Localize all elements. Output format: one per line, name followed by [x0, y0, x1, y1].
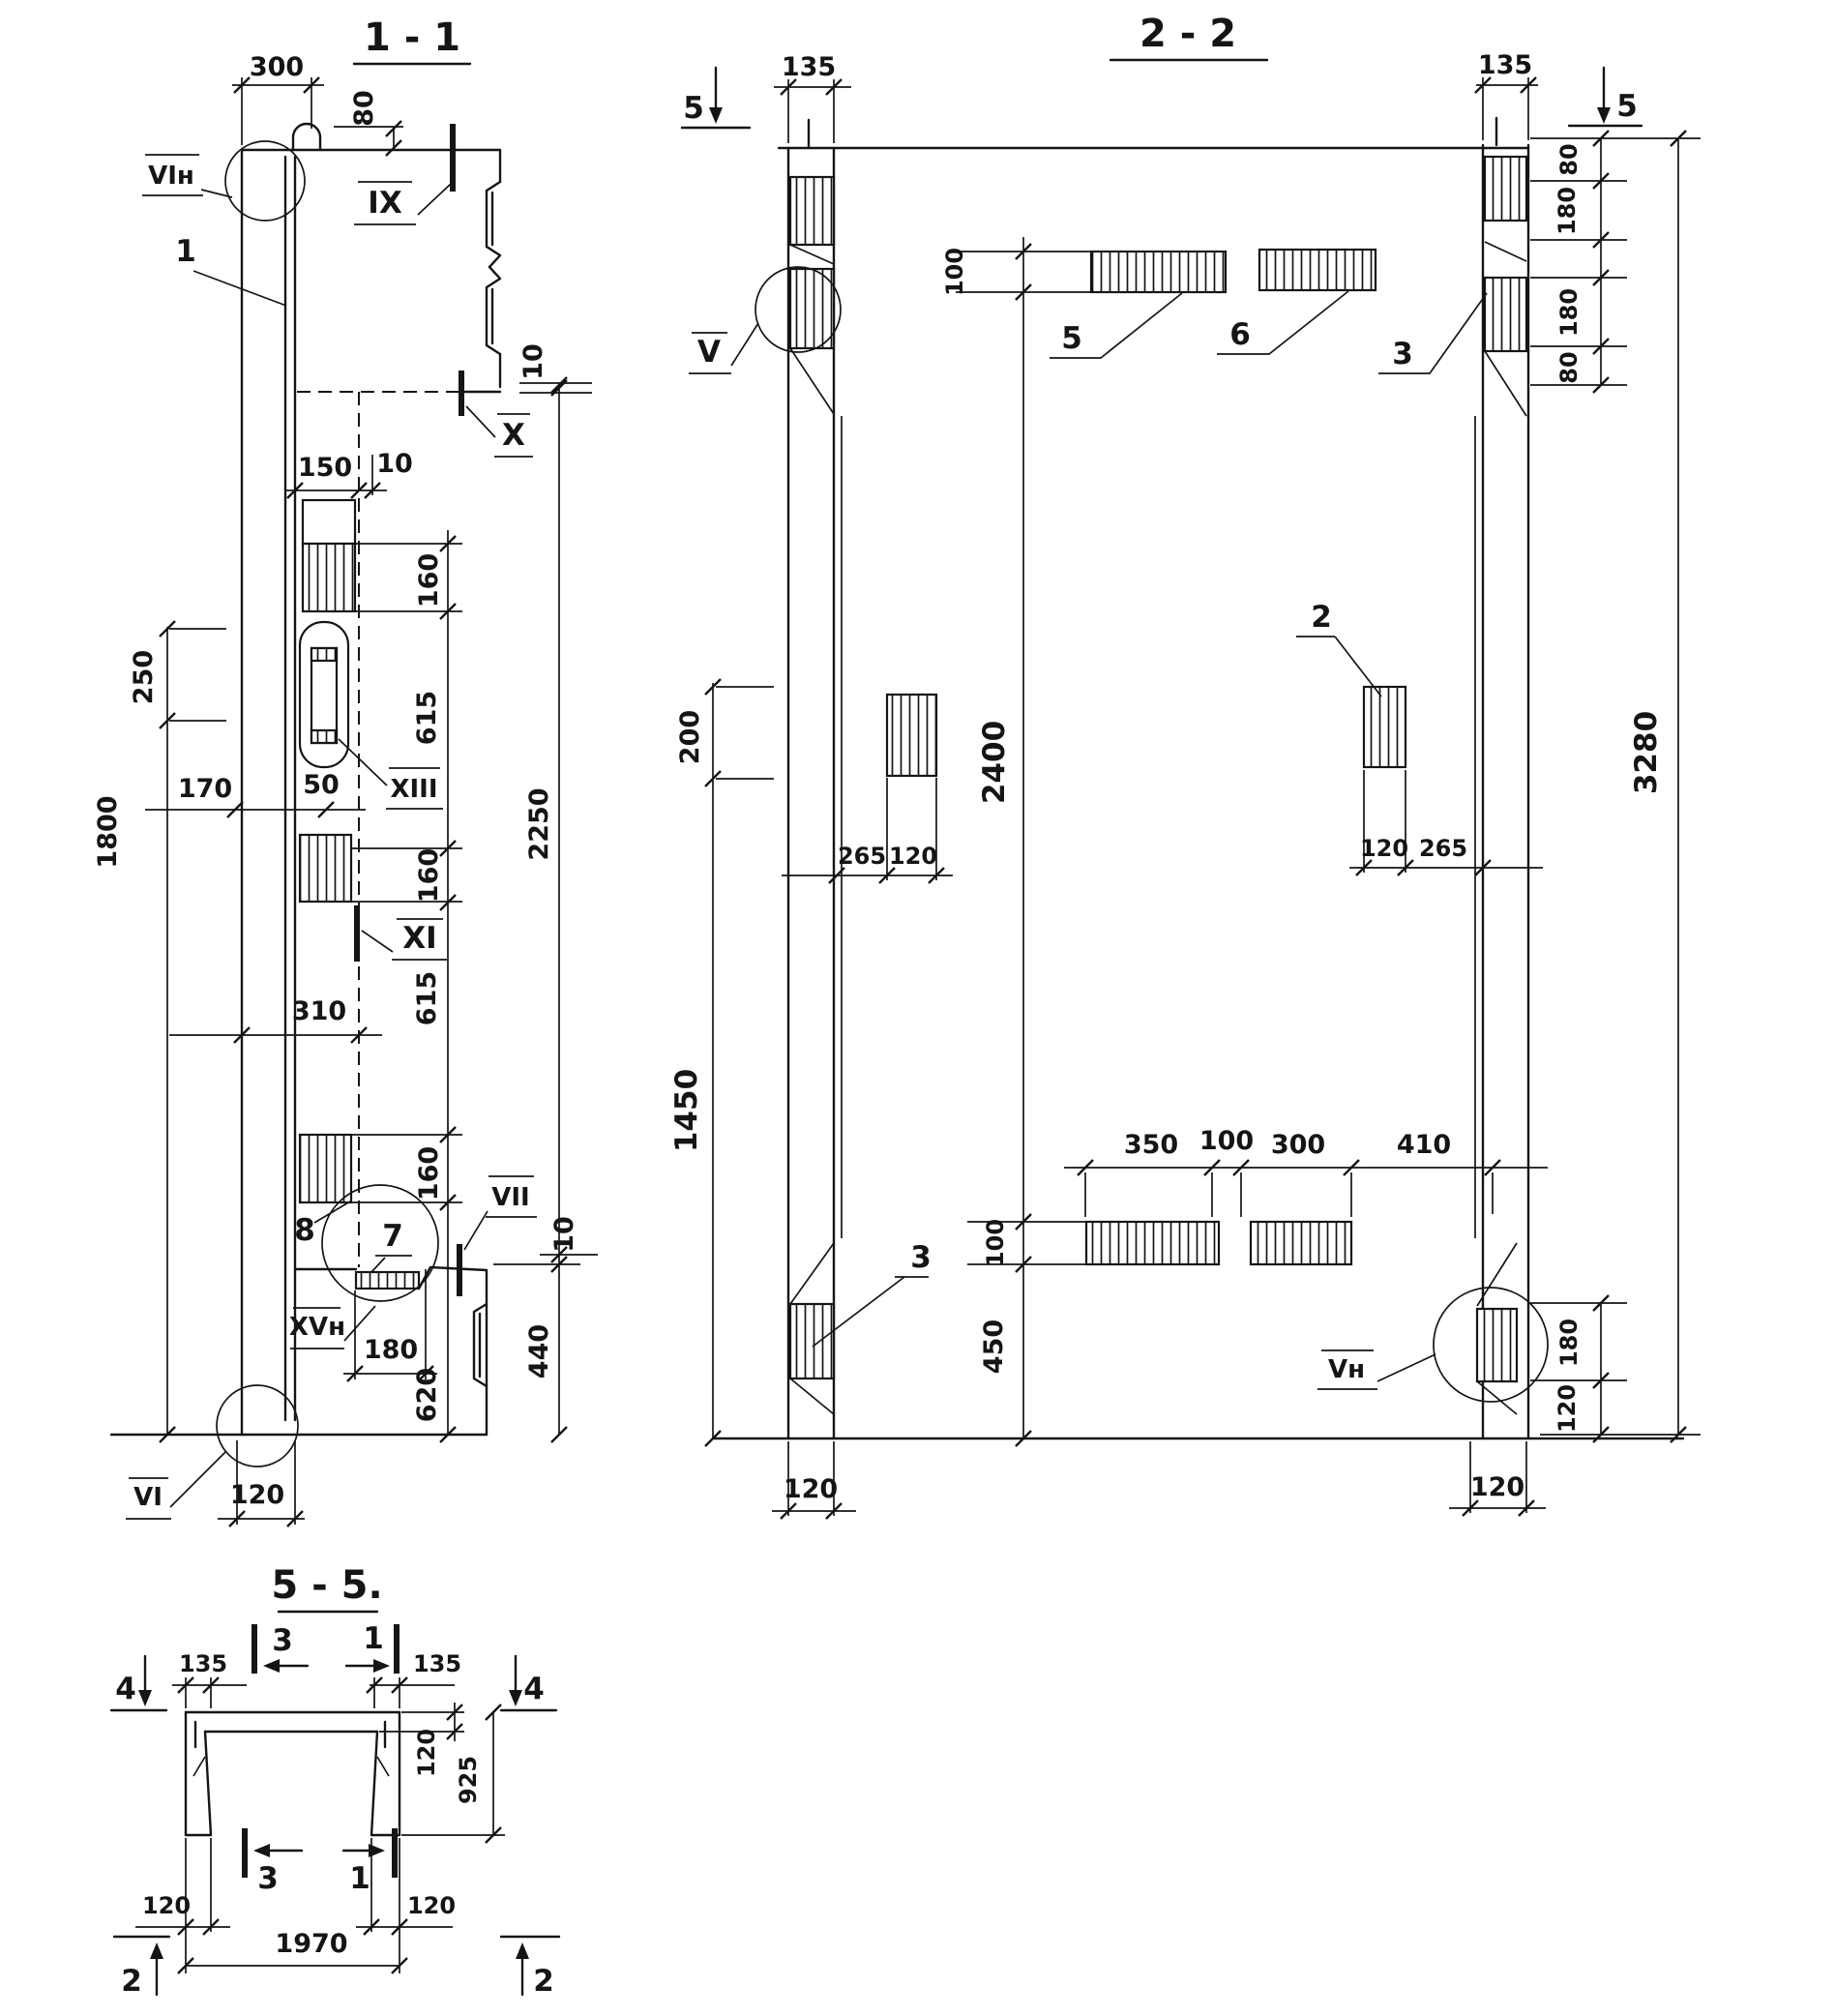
svg-text:10: 10 [549, 1216, 579, 1253]
anchor-item6 [1259, 250, 1376, 290]
svg-text:310: 310 [292, 996, 346, 1026]
svg-text:100: 100 [941, 248, 968, 296]
svg-text:150: 150 [298, 453, 352, 483]
svg-text:50: 50 [303, 770, 340, 800]
svg-text:7: 7 [382, 1219, 403, 1254]
svg-text:265: 265 [838, 843, 886, 870]
svg-text:3280: 3280 [1629, 711, 1664, 794]
svg-text:8: 8 [294, 1213, 315, 1248]
anchor-hatch-2 [300, 835, 351, 902]
svg-text:200: 200 [675, 710, 705, 764]
svg-text:180: 180 [1554, 187, 1581, 235]
technical-drawing: 1 - 1 [0, 0, 1835, 2016]
svg-text:180: 180 [1555, 288, 1583, 337]
svg-text:120: 120 [1360, 835, 1408, 862]
svg-text:2: 2 [533, 1964, 554, 1999]
svg-text:6: 6 [1229, 317, 1251, 352]
anchor-bottom-left [1086, 1222, 1219, 1264]
svg-text:XIII: XIII [390, 775, 437, 804]
svg-text:120: 120 [784, 1474, 838, 1504]
svg-text:VII: VII [491, 1183, 529, 1212]
right-rib-hatch-2 [1485, 278, 1526, 351]
svg-text:2250: 2250 [524, 787, 554, 860]
svg-text:620: 620 [412, 1368, 442, 1422]
svg-text:120: 120 [1554, 1384, 1581, 1433]
anchor-mid-left [887, 695, 936, 776]
svg-text:3: 3 [272, 1623, 293, 1658]
svg-text:4: 4 [523, 1672, 545, 1706]
svg-text:160: 160 [414, 848, 444, 903]
svg-text:2: 2 [1311, 600, 1332, 635]
svg-text:1: 1 [175, 234, 196, 269]
svg-text:120: 120 [889, 843, 937, 870]
svg-text:2: 2 [121, 1964, 142, 1999]
svg-text:925: 925 [455, 1756, 482, 1804]
svg-text:3: 3 [257, 1861, 279, 1896]
svg-text:80: 80 [349, 90, 379, 127]
svg-text:135: 135 [1478, 50, 1532, 80]
svg-text:300: 300 [250, 52, 304, 82]
svg-text:1800: 1800 [93, 795, 123, 868]
svg-text:170: 170 [178, 774, 232, 804]
section-1-1-title: 1 - 1 [364, 15, 460, 60]
svg-text:1: 1 [363, 1621, 384, 1656]
svg-text:265: 265 [1419, 835, 1467, 862]
svg-text:135: 135 [179, 1650, 227, 1677]
svg-text:450: 450 [979, 1319, 1009, 1374]
svg-text:80: 80 [1555, 351, 1583, 383]
svg-text:1450: 1450 [669, 1069, 704, 1152]
svg-text:410: 410 [1397, 1130, 1451, 1160]
svg-text:160: 160 [414, 1146, 444, 1201]
svg-text:250: 250 [129, 650, 159, 704]
svg-text:X: X [502, 418, 525, 453]
svg-text:300: 300 [1271, 1130, 1325, 1160]
svg-text:180: 180 [364, 1335, 418, 1365]
svg-text:XVн: XVн [289, 1313, 345, 1342]
svg-text:1970: 1970 [275, 1929, 347, 1959]
svg-text:5: 5 [683, 91, 704, 126]
left-rib-hatch-bottom [790, 1304, 834, 1379]
section-5-5-title: 5 - 5. [271, 1563, 382, 1608]
anchor-item2 [1364, 687, 1406, 767]
svg-text:4: 4 [115, 1672, 136, 1706]
svg-text:350: 350 [1124, 1130, 1178, 1160]
svg-text:10: 10 [376, 449, 413, 479]
svg-text:10: 10 [518, 343, 548, 380]
anchor-item5 [1091, 252, 1226, 292]
svg-text:615: 615 [412, 971, 442, 1025]
svg-text:VIн: VIн [148, 162, 194, 191]
svg-text:100: 100 [1199, 1126, 1254, 1156]
svg-text:135: 135 [782, 52, 836, 82]
svg-text:3: 3 [1392, 337, 1413, 371]
svg-text:XI: XI [402, 921, 436, 956]
svg-text:120: 120 [230, 1480, 284, 1510]
svg-text:180: 180 [1555, 1319, 1583, 1367]
svg-text:135: 135 [413, 1650, 461, 1677]
svg-text:VI: VI [133, 1483, 163, 1512]
svg-text:100: 100 [982, 1219, 1009, 1267]
svg-text:120: 120 [142, 1892, 191, 1919]
anchor-hatch-3 [300, 1135, 351, 1202]
drawing-sheet: 1 - 1 [0, 0, 1835, 2016]
svg-text:5: 5 [1061, 321, 1082, 356]
svg-text:440: 440 [524, 1324, 554, 1379]
right-rib-hatch-bottom [1477, 1309, 1517, 1381]
section-2-2-title: 2 - 2 [1139, 12, 1236, 56]
left-rib-hatch-1 [790, 177, 834, 245]
anchor-hatch-1 [303, 544, 355, 611]
svg-text:120: 120 [407, 1892, 456, 1919]
svg-text:2400: 2400 [977, 721, 1012, 804]
svg-text:IX: IX [368, 186, 402, 221]
svg-text:1: 1 [349, 1861, 370, 1896]
svg-text:120: 120 [1470, 1472, 1524, 1502]
svg-text:3: 3 [910, 1240, 932, 1275]
right-rib-hatch-1 [1485, 157, 1526, 221]
anchor-bottom-right [1251, 1222, 1351, 1264]
svg-text:120: 120 [413, 1729, 440, 1777]
bearing-pad-hatch [356, 1272, 419, 1289]
svg-text:V: V [697, 335, 721, 370]
svg-text:615: 615 [412, 691, 442, 745]
left-rib-hatch-2 [790, 269, 834, 348]
svg-text:160: 160 [414, 553, 444, 608]
svg-text:Vн: Vн [1328, 1355, 1365, 1384]
svg-text:80: 80 [1555, 143, 1583, 175]
svg-text:5: 5 [1616, 89, 1638, 124]
